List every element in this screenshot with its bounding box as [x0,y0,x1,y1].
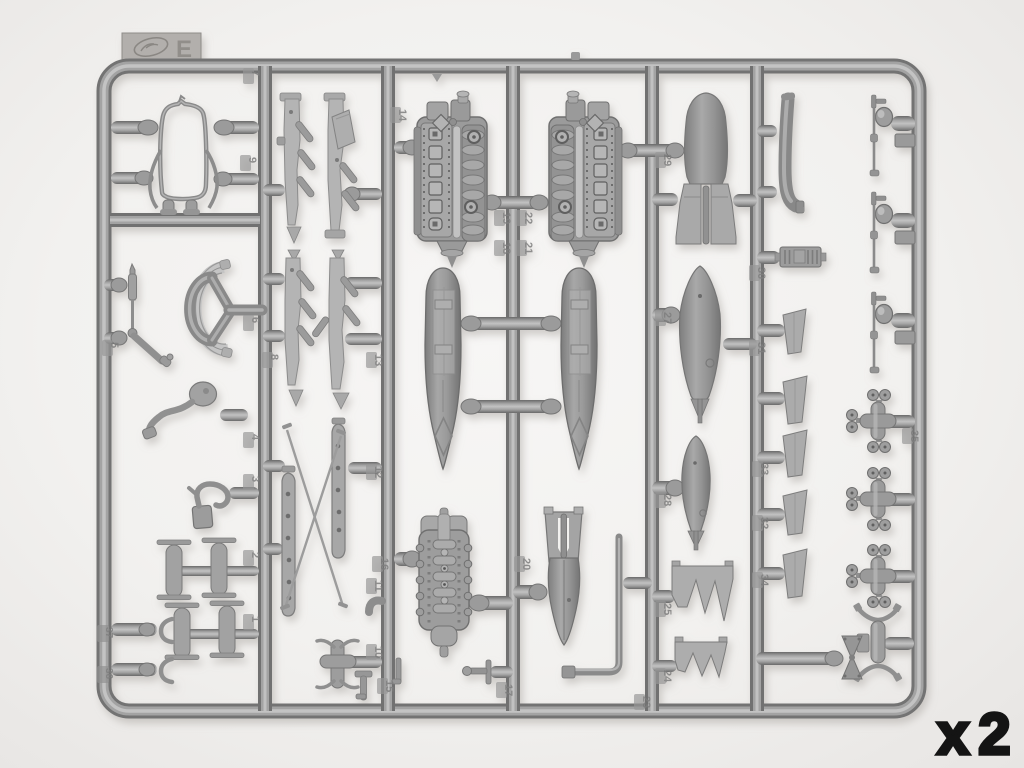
svg-text:12: 12 [372,466,384,478]
svg-text:29: 29 [661,154,673,166]
svg-text:4: 4 [249,434,261,441]
svg-text:22: 22 [522,212,534,224]
svg-text:19: 19 [500,212,512,224]
svg-text:20: 20 [520,558,532,570]
svg-text:36: 36 [103,668,114,680]
svg-text:23: 23 [640,696,652,708]
svg-text:24: 24 [661,670,673,683]
svg-text:11: 11 [372,580,384,592]
svg-text:34: 34 [758,574,770,587]
svg-text:8: 8 [268,354,280,360]
svg-text:35: 35 [908,430,920,442]
svg-text:32: 32 [758,517,770,529]
svg-text:37: 37 [103,627,114,639]
svg-text:5: 5 [108,342,120,348]
svg-text:16: 16 [378,558,390,570]
svg-text:28: 28 [661,494,673,506]
svg-text:2: 2 [249,552,261,558]
svg-text:17: 17 [502,684,514,696]
svg-text:3: 3 [249,476,261,482]
svg-text:30: 30 [755,267,767,279]
svg-text:33: 33 [758,463,770,475]
svg-text:27: 27 [661,312,673,324]
svg-text:10: 10 [372,646,384,658]
svg-text:21: 21 [522,242,534,254]
svg-text:18: 18 [500,242,512,254]
svg-text:9: 9 [246,157,258,163]
svg-text:13: 13 [372,354,384,366]
svg-text:1: 1 [249,616,261,622]
svg-text:15: 15 [383,680,395,692]
svg-text:x2: x2 [937,702,1020,767]
svg-text:7: 7 [249,70,261,76]
svg-text:6: 6 [249,317,261,323]
svg-text:25: 25 [661,603,673,615]
svg-text:14: 14 [396,109,408,122]
svg-text:31: 31 [755,342,767,354]
